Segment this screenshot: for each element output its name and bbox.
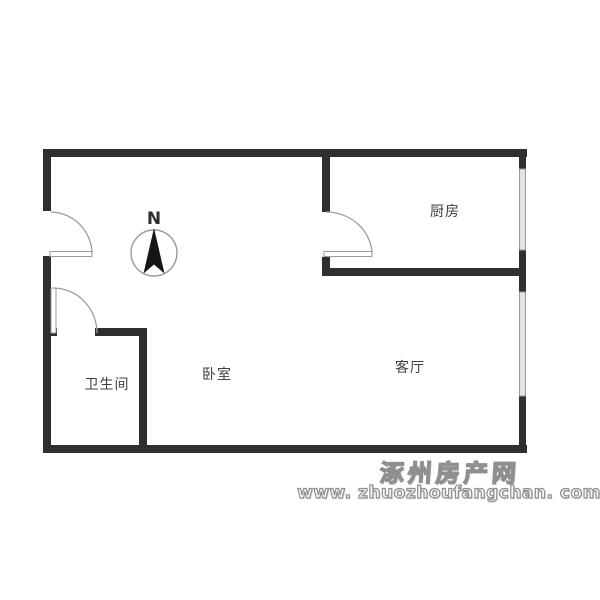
compass-icon xyxy=(131,228,177,276)
floorplan-drawing xyxy=(0,0,600,600)
wall-kitchen-bottom xyxy=(322,268,526,276)
room-label-bedroom: 卧室 xyxy=(202,364,232,384)
kitchen-door-leaf-icon xyxy=(324,252,372,257)
walls xyxy=(43,149,527,453)
wall-left-lower xyxy=(43,256,51,453)
wall-bottom xyxy=(43,445,527,453)
kitchen-door-arc-icon xyxy=(326,212,372,254)
wall-right-upper xyxy=(519,149,526,169)
wall-top xyxy=(43,149,527,157)
compass-north-label: N xyxy=(147,209,161,229)
room-label-living-room: 客厅 xyxy=(395,357,425,377)
bathroom-door-leaf-icon xyxy=(51,288,56,333)
wall-kitchen-left-upper xyxy=(322,149,330,212)
floorplan-page: 厨房 客厅 卧室 卫生间 N 涿州房产网 www. zhuozhoufangch… xyxy=(0,0,600,600)
room-label-kitchen: 厨房 xyxy=(430,201,460,221)
wall-left-upper xyxy=(43,149,51,211)
room-label-bathroom: 卫生间 xyxy=(85,374,130,394)
kitchen-window-icon xyxy=(520,169,526,250)
wall-bathroom-right xyxy=(139,328,147,453)
entry-door-arc-icon xyxy=(51,212,92,254)
north-arrow-icon xyxy=(144,228,165,274)
living-room-window-icon xyxy=(520,292,526,396)
wall-right-lower xyxy=(519,396,526,453)
entry-door-leaf-icon xyxy=(50,252,92,257)
bathroom-door-arc-icon xyxy=(53,288,97,333)
watermark-site-url: www. zhuozhoufangchan. com xyxy=(297,483,600,503)
